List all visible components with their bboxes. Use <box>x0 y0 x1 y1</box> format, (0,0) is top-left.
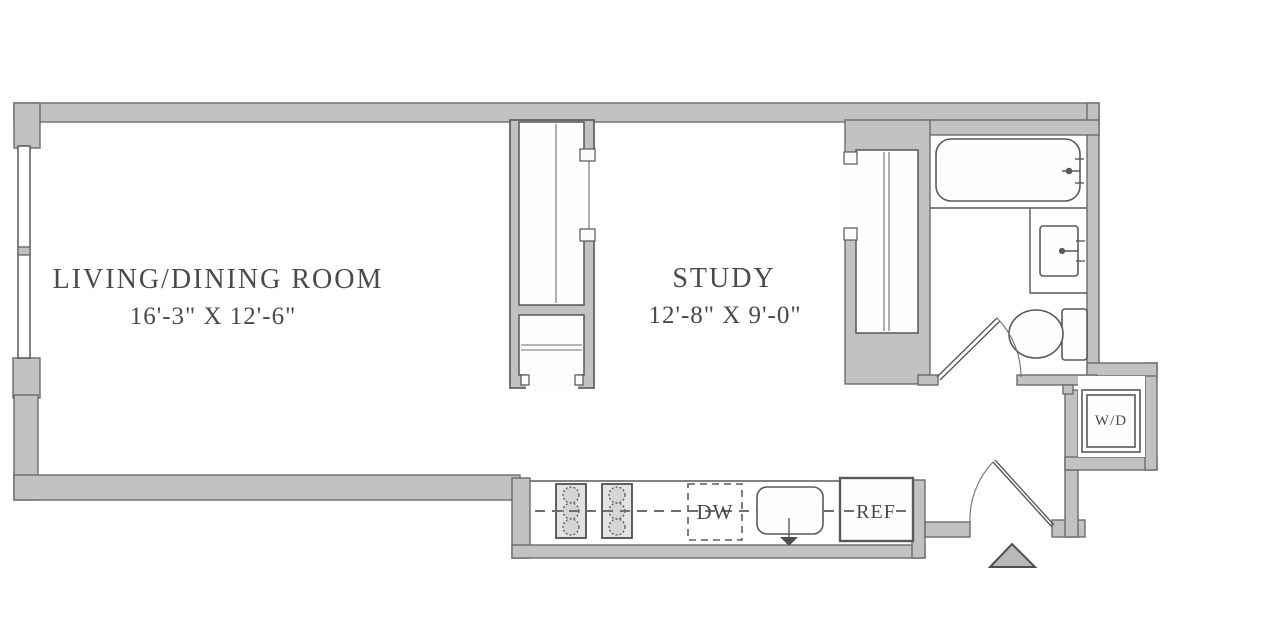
entry-arrow-icon <box>990 544 1035 567</box>
bathtub <box>936 139 1080 201</box>
entry-door-swing-arc <box>970 462 993 524</box>
study-label: STUDY <box>672 263 775 294</box>
study-closet-jamb-top <box>844 152 857 164</box>
wd-top-wall <box>1087 363 1157 376</box>
hall-closet <box>510 120 596 390</box>
closet-bottom-jamb-right <box>575 375 583 385</box>
living-dining-room-label: LIVING/DINING ROOM <box>53 264 384 295</box>
living-bottom-wall <box>14 475 520 500</box>
wd-right-wall <box>1145 363 1157 470</box>
living-dining-room-dimensions: 16'-3" X 12'-6" <box>130 303 297 330</box>
bathroom-bottom-wall-left <box>918 375 938 385</box>
window-mullion <box>18 247 30 255</box>
floor-plan-page: LIVING/DINING ROOM 16'-3" X 12'-6" STUDY… <box>0 0 1276 622</box>
sink-basin <box>757 487 823 534</box>
entry <box>970 460 1054 567</box>
study-closet-interior <box>856 150 918 333</box>
bathroom-door-leaf <box>937 318 997 377</box>
bathroom-top-wall <box>925 120 1099 135</box>
kitchen-sink <box>757 487 823 546</box>
entry-door-leaf-2 <box>995 460 1054 525</box>
left-window-post <box>13 358 40 398</box>
closet-door-jamb-bottom <box>580 229 595 241</box>
closet-upper-interior <box>519 122 584 305</box>
closet-bottom-jamb-left <box>521 375 529 385</box>
closet-opening-bottom <box>526 374 578 390</box>
entry-left-jamb-wall <box>925 522 970 537</box>
study-dimensions: 12'-8" X 9'-0" <box>648 302 801 329</box>
entry-right-wall <box>1065 470 1078 537</box>
entry-door-leaf <box>993 462 1052 527</box>
top-left-corner-block <box>14 103 40 148</box>
living-room-window <box>18 146 30 358</box>
kitchen-bottom-wall <box>512 545 925 558</box>
dishwasher-label: DW <box>697 500 734 524</box>
wd-door-jamb-notch <box>1063 385 1073 394</box>
bathroom <box>930 139 1087 380</box>
closet-door-jamb-top <box>580 149 595 161</box>
refrigerator-label: REF <box>856 501 896 523</box>
floor-plan: LIVING/DINING ROOM 16'-3" X 12'-6" STUDY… <box>0 0 1276 622</box>
study-closet-door-opening <box>841 164 858 228</box>
toilet <box>1009 309 1087 360</box>
toilet-tank <box>1062 309 1087 360</box>
bathroom-door <box>937 318 1021 380</box>
bathroom-door-leaf-2 <box>940 321 1000 380</box>
study-closet-jamb-bottom <box>844 228 857 240</box>
top-wall <box>14 103 1099 122</box>
wd-bottom-wall <box>1065 457 1157 470</box>
washer-dryer-label: W/D <box>1095 413 1127 429</box>
right-outer-wall <box>1087 103 1099 376</box>
